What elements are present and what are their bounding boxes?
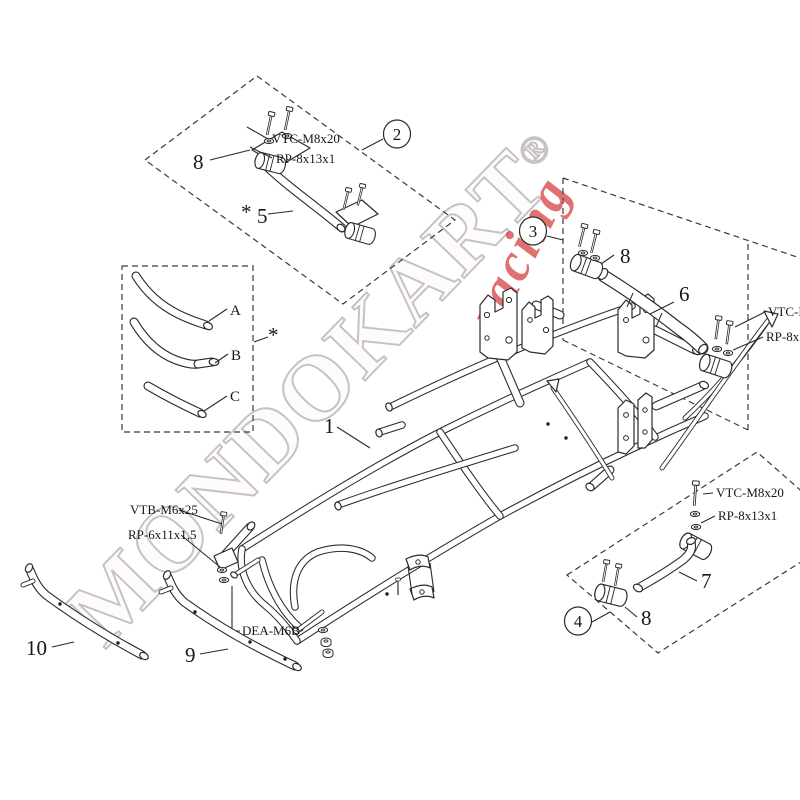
group4-tube-label: 7 xyxy=(701,569,712,593)
dea-washer-icon xyxy=(318,627,327,632)
group3-tube-label: 6 xyxy=(679,282,690,306)
group3-badge-number: 3 xyxy=(529,222,538,241)
group3-bolt-label: VTC-M8x20 xyxy=(768,304,800,319)
tube-b-label: B xyxy=(231,348,241,364)
vtb-bolt-label: VTB-M6x25 xyxy=(130,502,198,517)
group4-bolt-label: VTC-M8x20 xyxy=(716,485,784,500)
group4-washer-label: RP-8x13x1 xyxy=(718,508,777,523)
tube-c-label: C xyxy=(230,389,240,405)
tube-options-star: * xyxy=(268,323,279,347)
tube-a-label: A xyxy=(230,303,241,319)
dea-nut-label: DEA-M6B xyxy=(242,623,300,638)
rp6-washer-icon xyxy=(217,567,226,572)
group2-washer-label: RP-8x13x1 xyxy=(276,151,335,166)
rp6-washer-icon xyxy=(219,577,228,582)
washer-icon xyxy=(712,346,721,351)
group4-clamp-label: 8 xyxy=(641,606,652,630)
front-bumper-label: 10 xyxy=(26,636,47,660)
group2-clamp-label: 8 xyxy=(193,150,204,174)
group4-badge-number: 4 xyxy=(574,612,583,631)
parts-diagram: MONDOKART® racing xyxy=(0,0,800,800)
washer-icon xyxy=(590,255,599,260)
dea-nut-icon xyxy=(323,649,333,658)
dea-nut-icon xyxy=(321,638,331,647)
side-bumper-label: 9 xyxy=(185,643,196,667)
washer-icon xyxy=(723,350,732,355)
group2-bolt-label: VTC-M8x20 xyxy=(272,131,340,146)
rp6-washer-label: RP-6x11x1,5 xyxy=(128,527,197,542)
group2-badge-number: 2 xyxy=(393,125,402,144)
washer-icon xyxy=(690,511,699,516)
group2-tube-label: 5 xyxy=(257,204,268,228)
group3-clamp-label: 8 xyxy=(620,244,631,268)
group3-washer-label: RP-8x13x1 xyxy=(766,329,800,344)
group2-star: * xyxy=(241,200,252,224)
washer-icon xyxy=(691,524,700,529)
frame-label: 1 xyxy=(324,414,335,438)
washer-icon xyxy=(578,250,587,255)
